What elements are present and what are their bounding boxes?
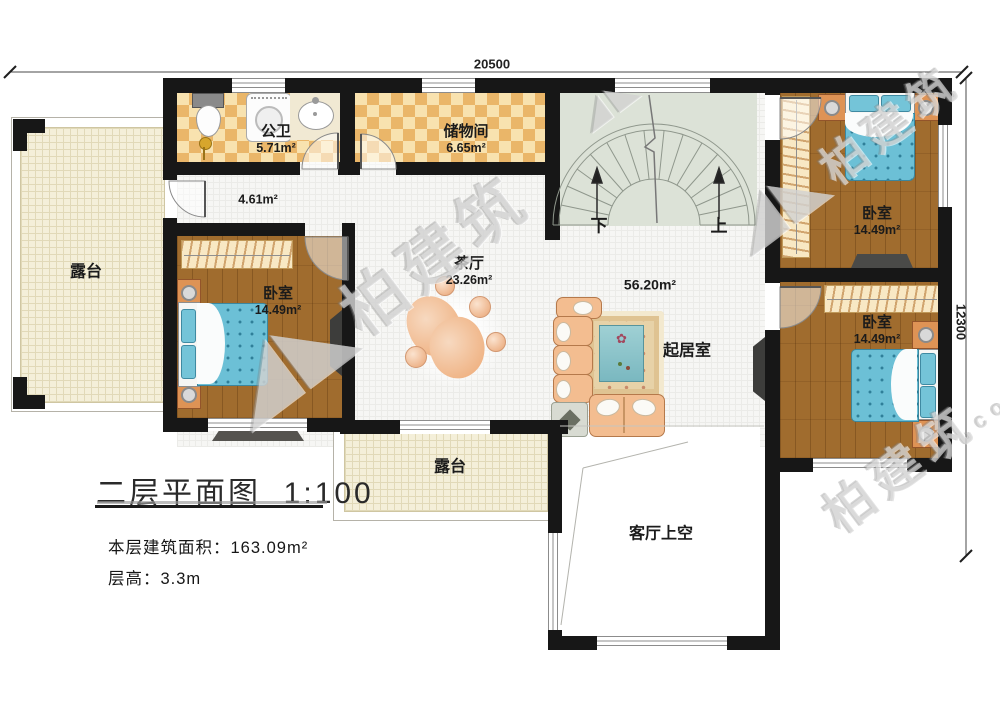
sofa-icon [553,316,593,346]
wall-segment [490,420,568,434]
wall-segment [710,78,952,93]
floor-height-text: 层高：3.3m [108,565,374,589]
bed-duvet [891,349,917,420]
cushion-icon [486,332,506,352]
nightstand-icon [912,94,940,121]
wall-segment [548,434,562,533]
pillow-icon [181,309,196,343]
wall-segment [548,636,597,650]
wall-segment [163,223,305,236]
wall-segment [545,78,560,240]
hallway-area-label: 4.61m² [238,191,278,210]
stairs-up-label: 上 [711,217,728,238]
coffee-table-icon: ✿ [599,325,644,382]
sink-counter [290,93,340,140]
tv-icon [330,310,342,376]
terrace-bottom-label: 露台 [434,459,466,478]
storage-label: 储物间6.65m² [443,123,488,155]
pillow-icon [849,95,879,112]
window [938,125,952,207]
living-zone-area-label: 56.20m² [624,277,676,296]
cushion-icon [405,346,427,368]
window [615,78,710,93]
wall-segment [907,458,952,472]
wall-segment [340,78,355,175]
wall-segment [163,162,300,175]
wardrobe-icon [181,240,293,269]
wall-segment [396,162,545,175]
sliding-door [400,420,490,434]
sofa-icon [553,345,593,375]
wall-segment [938,207,952,472]
pillow-icon [881,95,911,112]
wardrobe-icon [782,96,810,258]
window-box [212,430,304,441]
title-underline-shadow [97,501,327,504]
floor-drain-icon [199,137,212,150]
bathroom-label: 公卫5.71m² [256,123,296,155]
wall-segment [338,162,360,175]
wall-segment [13,119,27,151]
title-block: 二层平面图 1:100 本层建筑面积：163.09m² 层高：3.3m [96,468,374,589]
wall-segment [765,78,780,95]
window [813,458,907,472]
tv-console-icon [851,254,913,268]
window [422,78,475,93]
floor-plan: ✿ [0,0,1000,706]
wall-segment [765,330,780,472]
bedroom-left-label: 卧室14.49m² [255,285,302,317]
sofa-icon [589,394,665,437]
pillow-icon [181,345,196,379]
wall-segment [765,140,780,283]
tv-icon [753,337,765,401]
pillow-icon [920,386,936,418]
window [208,418,307,431]
stairs-down-label: 下 [591,217,608,238]
wall-segment [765,472,780,650]
wall-segment [342,223,355,420]
wall-segment [163,218,177,420]
floor-drain-stem [203,147,205,160]
wall-segment [340,420,400,434]
window [232,78,285,93]
dimension-height-label: 12300 [954,304,969,340]
tea-hall-label: 茶厅23.26m² [446,255,493,287]
window [597,636,727,650]
wall-segment [163,418,208,432]
wall-segment [938,93,952,125]
dimension-width-label: 20500 [474,57,510,72]
cushion-icon [469,296,491,318]
bedroom-mid-right-label: 卧室14.49m² [854,314,901,346]
nightstand-icon [912,321,940,349]
pillow-icon [920,353,936,385]
wardrobe-icon [824,285,940,313]
nightstand-icon [818,94,846,121]
nightstand-icon [912,420,940,448]
wall-segment [765,268,952,282]
sofa-icon [553,374,593,403]
floor-area-text: 本层建筑面积：163.09m² [108,534,374,558]
window [548,533,562,630]
title-underline [95,505,323,508]
wall-segment [13,395,45,409]
living-zone-label: 起居室 [663,343,711,362]
living-void-label: 客厅上空 [629,526,693,545]
bedroom-top-right-label: 卧室14.49m² [854,205,901,237]
terrace-left-label: 露台 [70,264,102,283]
